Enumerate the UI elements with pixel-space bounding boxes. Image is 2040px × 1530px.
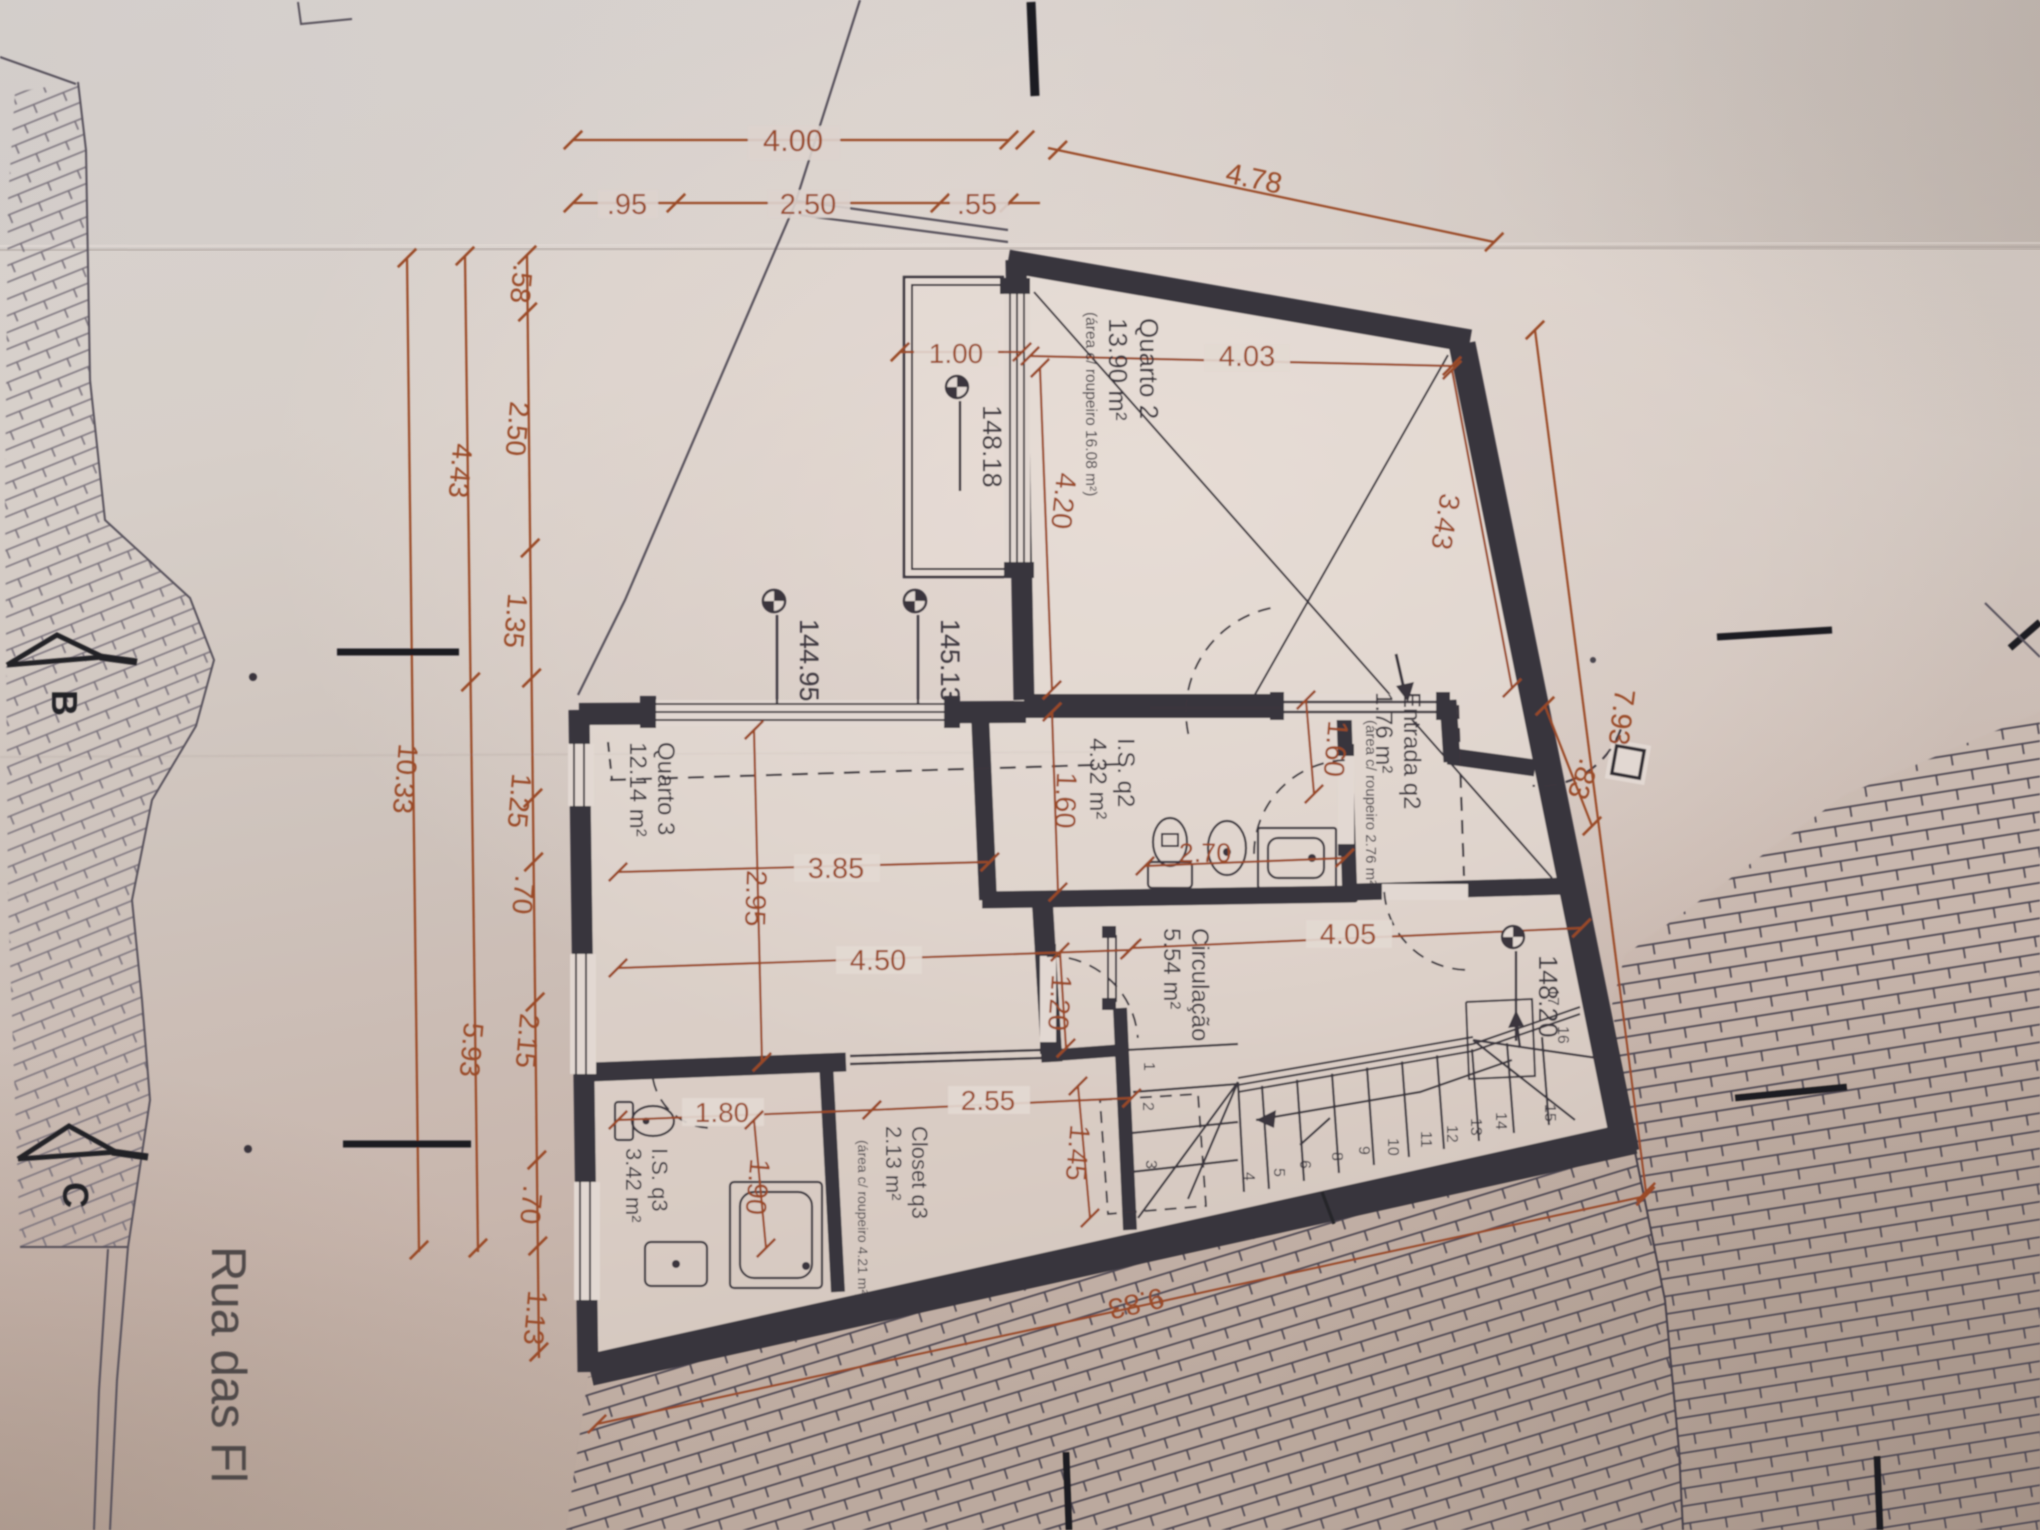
svg-text:145.13: 145.13 xyxy=(935,619,965,702)
svg-text:14: 14 xyxy=(1492,1112,1509,1130)
svg-text:B: B xyxy=(44,690,85,716)
svg-text:11: 11 xyxy=(1417,1131,1434,1148)
svg-text:10: 10 xyxy=(1384,1138,1401,1156)
svg-text:148.20: 148.20 xyxy=(1533,955,1563,1038)
svg-text:10.33: 10.33 xyxy=(387,743,424,816)
svg-text:13: 13 xyxy=(1467,1118,1484,1136)
svg-text:4.05: 4.05 xyxy=(1320,919,1376,951)
svg-text:I.S. q33.42 m²: I.S. q33.42 m² xyxy=(621,1148,672,1223)
svg-text:2.70: 2.70 xyxy=(1179,838,1232,868)
svg-text:1.80: 1.80 xyxy=(695,1097,750,1128)
svg-text:.70: .70 xyxy=(514,1184,548,1225)
svg-text:6: 6 xyxy=(1296,1160,1313,1169)
svg-text:C: C xyxy=(55,1182,96,1208)
svg-text:1.20: 1.20 xyxy=(1041,973,1077,1032)
svg-text:1.13: 1.13 xyxy=(518,1289,554,1346)
svg-text:2: 2 xyxy=(1139,1102,1156,1111)
svg-text:.95: .95 xyxy=(607,189,647,221)
svg-text:(área c/ roupeiro 2.76 m²): (área c/ roupeiro 2.76 m²) xyxy=(1362,720,1379,890)
svg-text:3: 3 xyxy=(1142,1160,1159,1169)
svg-text:1.00: 1.00 xyxy=(929,338,984,369)
svg-text:1.60: 1.60 xyxy=(1317,719,1354,778)
svg-text:.70: .70 xyxy=(506,874,540,915)
svg-text:144.95: 144.95 xyxy=(794,619,824,702)
svg-text:.58: .58 xyxy=(504,263,538,304)
svg-text:4.20: 4.20 xyxy=(1044,471,1082,530)
svg-text:8: 8 xyxy=(1328,1152,1345,1161)
svg-text:(área c/ roupeiro 4.21 m²): (área c/ roupeiro 4.21 m²) xyxy=(855,1140,871,1299)
svg-text:148.18: 148.18 xyxy=(977,405,1007,488)
svg-text:2.50: 2.50 xyxy=(780,189,836,221)
svg-text:7.93: 7.93 xyxy=(1602,687,1641,747)
svg-text:5: 5 xyxy=(1270,1168,1287,1177)
svg-text:1.25: 1.25 xyxy=(502,772,538,829)
svg-text:2.15: 2.15 xyxy=(510,1012,546,1069)
svg-text:4.50: 4.50 xyxy=(850,945,906,977)
svg-text:3.85: 3.85 xyxy=(808,853,864,885)
svg-text:Rua das Fl: Rua das Fl xyxy=(201,1246,255,1483)
svg-text:Quarto 213.90 m²: Quarto 213.90 m² xyxy=(1103,318,1164,421)
svg-text:I.S. q24.32 m²: I.S. q24.32 m² xyxy=(1084,738,1139,819)
svg-text:15: 15 xyxy=(1541,1104,1558,1122)
svg-text:4.03: 4.03 xyxy=(1219,341,1275,373)
svg-text:9: 9 xyxy=(1355,1146,1372,1155)
svg-text:5.93: 5.93 xyxy=(454,1021,490,1078)
svg-text:1.60: 1.60 xyxy=(1048,772,1082,830)
svg-text:2.55: 2.55 xyxy=(961,1085,1016,1116)
svg-text:2.95: 2.95 xyxy=(738,870,772,928)
svg-text:4: 4 xyxy=(1240,1172,1257,1181)
svg-text:2.50: 2.50 xyxy=(500,400,536,457)
svg-text:12: 12 xyxy=(1443,1125,1460,1143)
svg-text:1: 1 xyxy=(1140,1062,1157,1071)
svg-text:1.35: 1.35 xyxy=(498,592,534,649)
svg-text:.55: .55 xyxy=(957,189,997,221)
svg-text:4.43: 4.43 xyxy=(443,442,479,499)
svg-text:4.00: 4.00 xyxy=(763,123,823,158)
svg-text:1.45: 1.45 xyxy=(1059,1123,1096,1182)
svg-text:Quarto 312.14 m²: Quarto 312.14 m² xyxy=(624,742,679,837)
svg-text:(área c/ roupeiro 16.08 m²): (área c/ roupeiro 16.08 m²) xyxy=(1082,312,1099,496)
svg-text:1.90: 1.90 xyxy=(739,1157,776,1216)
